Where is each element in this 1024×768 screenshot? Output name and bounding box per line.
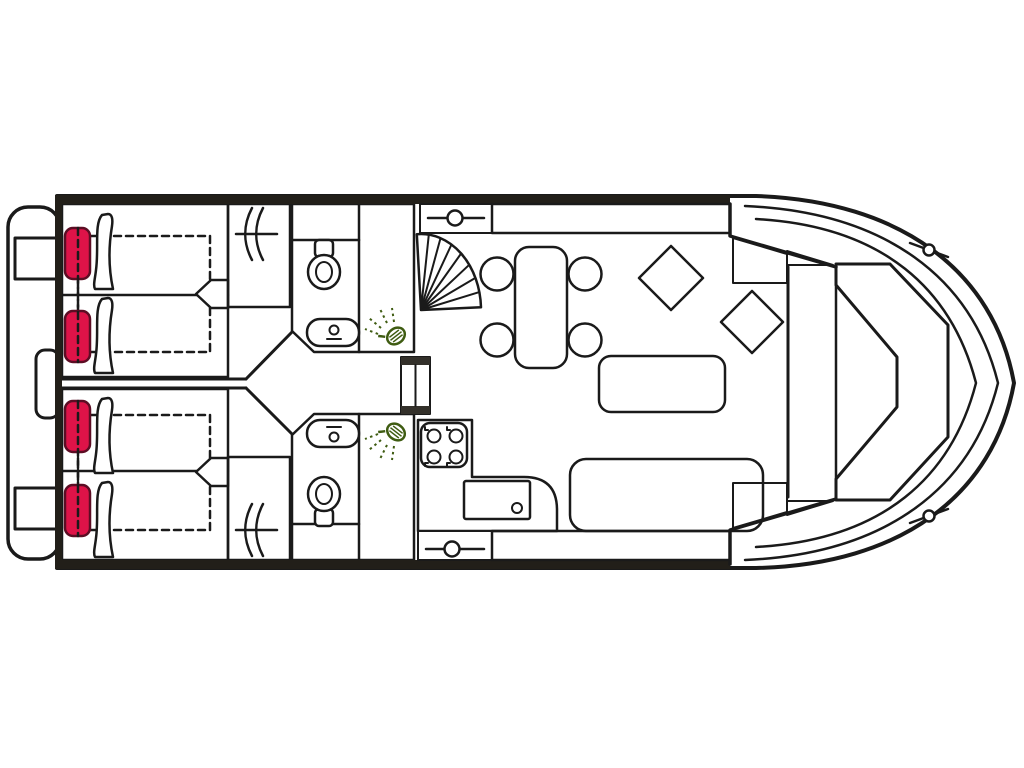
corridor-wall-lower [246, 388, 292, 434]
galley-sink [464, 481, 530, 519]
dinette-chair [569, 324, 602, 357]
cleat-starboard-icon [910, 509, 948, 523]
hanging-rail-icon [236, 504, 277, 556]
galley [418, 420, 557, 531]
cleat-port-icon [910, 243, 948, 257]
galley-sink-icon [464, 481, 530, 519]
cabinet-cap-top [401, 357, 430, 365]
corridor-wall-upper [246, 332, 292, 379]
pillow [94, 482, 113, 557]
cabin-wall-aft [55, 195, 62, 569]
spiral-staircase [417, 234, 481, 310]
stair-treads [421, 235, 479, 310]
stool-diamond-1 [639, 246, 703, 310]
stool-diamond-2 [721, 291, 783, 353]
stern-step-bottom [15, 488, 58, 529]
helm-trim-starboard-wing [787, 501, 833, 515]
shower-icon [365, 308, 408, 351]
cabin-wall-top [55, 195, 730, 204]
pillow [94, 298, 113, 373]
toilet-icon [308, 477, 340, 526]
dinette-chair [481, 324, 514, 357]
dinette-table [515, 247, 567, 368]
cabin-front-wall-port [730, 204, 836, 267]
stern-step-top [15, 238, 58, 279]
bow-gunwale-line-1 [745, 206, 998, 560]
sink-icon [307, 319, 359, 346]
cabinet-cap-bottom [401, 406, 430, 414]
stove-icon [421, 423, 467, 467]
helm-trim-port-wing [787, 251, 833, 265]
aft-cabins [62, 204, 228, 560]
sofa-long [570, 459, 763, 531]
fridge-cabinet [401, 357, 430, 414]
cabin-door-port [196, 280, 228, 308]
bathrooms [292, 204, 414, 560]
shower-icon [365, 417, 408, 460]
dinette-chair [481, 258, 514, 291]
hull-outline [57, 196, 1014, 568]
hanging-rail-icon [236, 208, 277, 260]
side-door-starboard-handle [445, 542, 460, 557]
pillow [94, 214, 113, 289]
boat-floor-plan [0, 0, 1024, 768]
sink-icon [307, 420, 359, 447]
cabin-wall-bottom [55, 560, 730, 569]
toilet-bowl [308, 255, 340, 289]
storage-locker-port [492, 204, 730, 233]
floor-plan-svg [0, 0, 1024, 768]
wardrobes [228, 204, 290, 560]
side-door-port-handle [448, 211, 463, 226]
pillow [94, 398, 113, 473]
cabin-door-starboard [196, 458, 228, 486]
cabin-walls [55, 195, 730, 569]
toilet-icon [308, 240, 340, 289]
toilet-bowl [308, 477, 340, 511]
bow-seat [836, 264, 948, 500]
dinette-chair [569, 258, 602, 291]
sofa-small [599, 356, 725, 412]
sink-basin [307, 319, 359, 346]
storage-locker-starboard [492, 531, 730, 560]
